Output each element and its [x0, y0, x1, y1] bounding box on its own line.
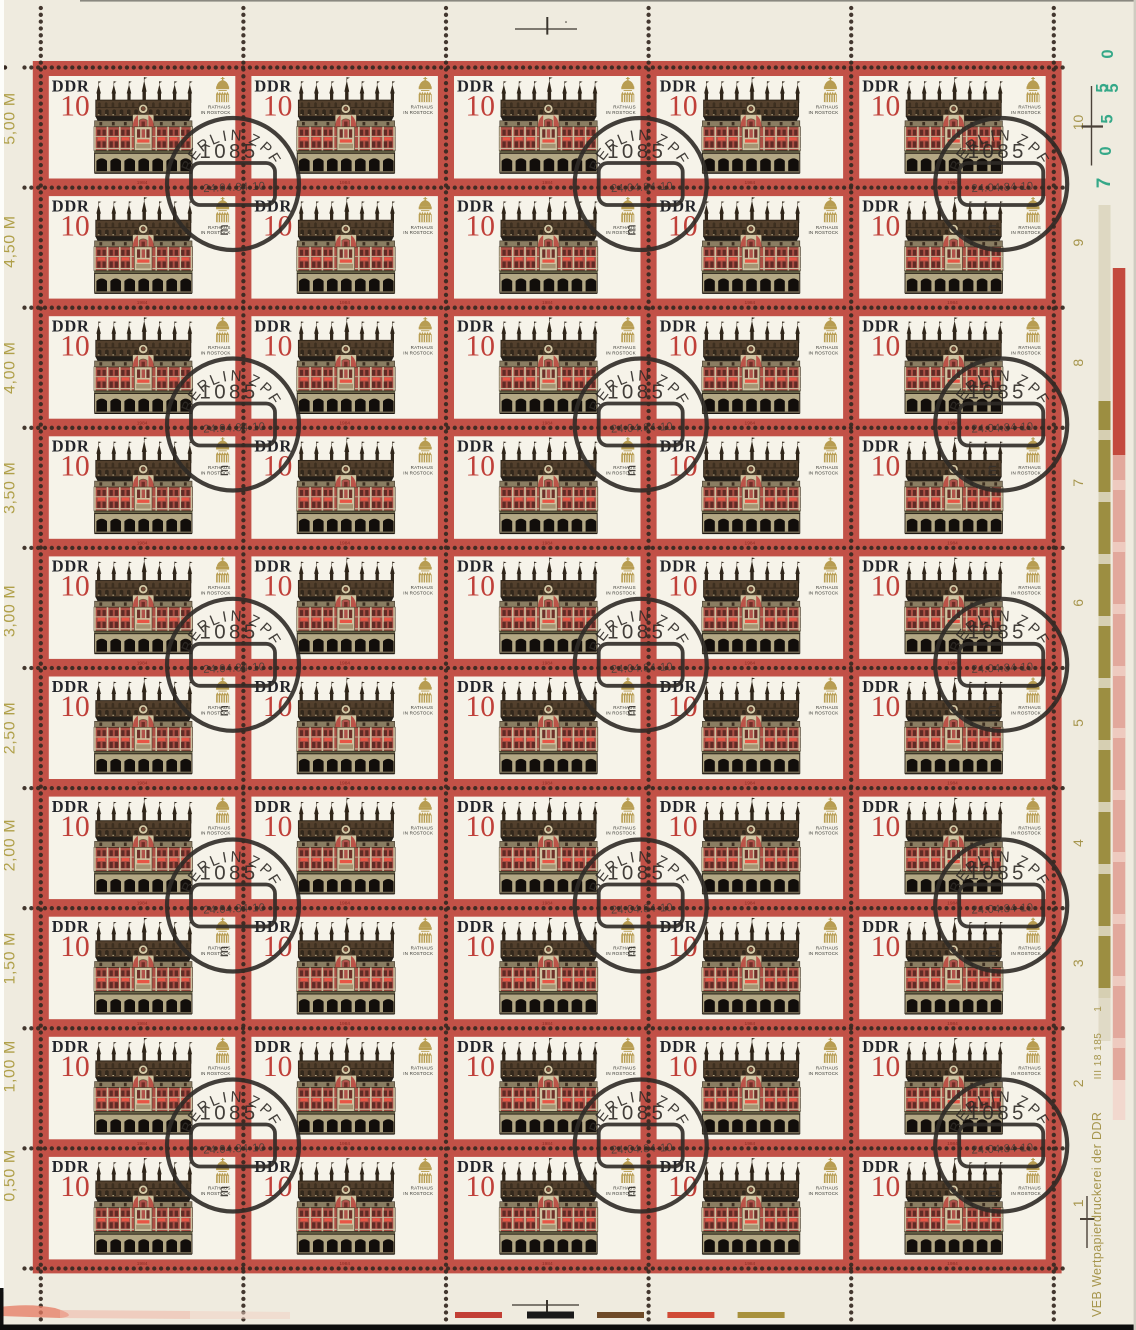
svg-text:1,50 M: 1,50 M [2, 932, 19, 985]
svg-text:0: 0 [1097, 146, 1115, 155]
svg-text:2: 2 [1070, 1079, 1086, 1087]
svg-text:10: 10 [1070, 115, 1086, 131]
svg-text:5,00 M: 5,00 M [2, 92, 19, 145]
svg-text:0,50 M: 0,50 M [2, 1149, 19, 1202]
svg-text:4,50 M: 4,50 M [2, 215, 19, 268]
svg-text:7: 7 [1070, 479, 1086, 487]
svg-text:4: 4 [1070, 839, 1086, 847]
svg-text:1,00 M: 1,00 M [2, 1040, 19, 1093]
svg-text:5: 5 [1070, 719, 1086, 727]
svg-text:2,50 M: 2,50 M [2, 702, 19, 755]
svg-text:3,50 M: 3,50 M [2, 462, 19, 515]
svg-text:5: 5 [1104, 83, 1122, 92]
svg-text:3: 3 [1070, 959, 1086, 967]
svg-text:6: 6 [1070, 599, 1086, 607]
svg-text:1: 1 [1070, 1199, 1086, 1207]
svg-text:5: 5 [1099, 114, 1117, 123]
svg-text:9: 9 [1070, 238, 1086, 246]
svg-text:4,00 M: 4,00 M [2, 341, 19, 394]
svg-text:8: 8 [1070, 359, 1086, 367]
svg-text:III 18 185: III 18 185 [1093, 1033, 1104, 1080]
svg-text:0: 0 [1099, 49, 1117, 58]
svg-text:1: 1 [1093, 1006, 1104, 1012]
svg-text:VEB Wertpapierdruckerei der DD: VEB Wertpapierdruckerei der DDR [1090, 1112, 1104, 1317]
svg-text:2,00 M: 2,00 M [2, 819, 19, 872]
svg-text:7: 7 [1094, 178, 1115, 189]
svg-text:3,00 M: 3,00 M [2, 585, 19, 638]
